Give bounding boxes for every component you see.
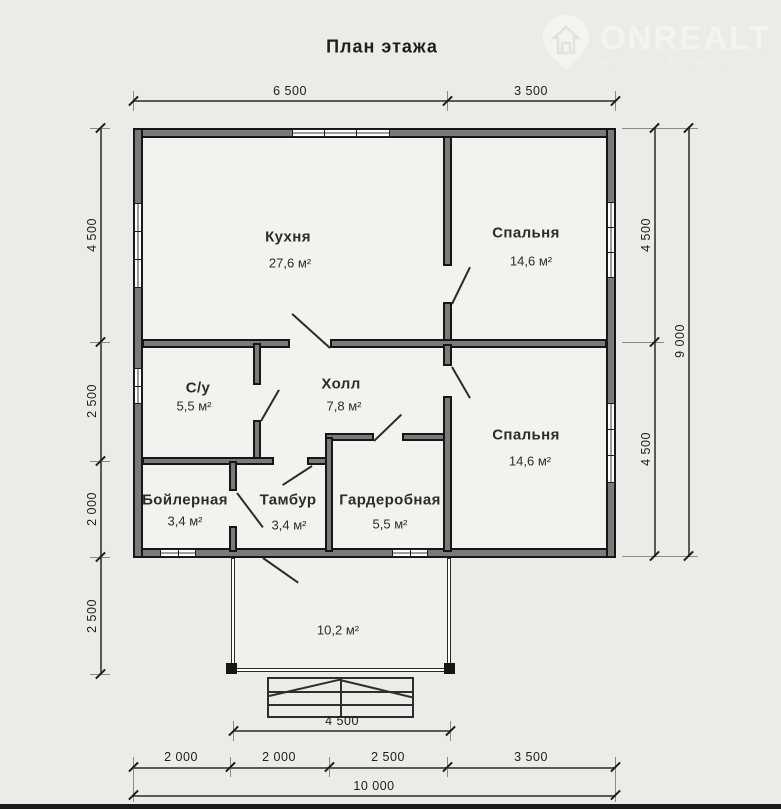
room-label-hall: Холл [321,376,360,393]
dimension-label-left-3: 2 000 [85,492,99,526]
room-area-bedroom2: 14,6 м² [509,454,551,469]
room-area-boiler: 3,4 м² [168,514,203,529]
wall-bedroom2-left [443,396,452,552]
porch-post [226,663,237,674]
dimension-line [133,795,616,797]
wall-central [142,339,290,348]
watermark-brand: ONREALT [600,21,771,54]
floor-plan: План этажа ONREALT НЕДВИЖИМОСТЬ [0,0,781,809]
dimension-label-bottom-1: 2 000 [164,750,198,764]
room-label-tambour: Тамбур [260,492,317,509]
window-mullion [607,227,615,228]
room-area-tambour: 3,4 м² [272,518,307,533]
dimension-line [100,128,102,675]
room-label-kitchen: Кухня [265,229,311,246]
window [134,203,142,288]
wall-central [330,339,607,348]
dimension-line [233,730,451,732]
dimension-label-bottom-3: 2 500 [371,750,405,764]
dimension-label-porch: 4 500 [325,714,359,728]
wall-boiler-right [229,526,237,552]
room-label-wardrobe: Гардеробная [339,492,440,509]
window-mullion [324,129,325,137]
watermark: ONREALT НЕДВИЖИМОСТЬ [540,13,771,76]
dimension-label-top-1: 6 500 [273,84,307,98]
room-area-bedroom1: 14,6 м² [510,254,552,269]
dimension-label-right-total: 9 000 [673,324,687,358]
wall-outer-right [606,128,616,558]
stair-center-line [340,678,342,717]
wall-kitchen-bedroom1 [443,136,452,266]
window-mullion [607,455,615,456]
window-mullion [607,252,615,253]
window-mullion [410,549,411,557]
dimension-label-bottom-4: 3 500 [514,750,548,764]
extension-line [622,342,664,343]
room-label-bedroom1: Спальня [492,225,560,242]
dimension-line [133,100,616,102]
dimension-label-bottom-2: 2 000 [262,750,296,764]
wall-bathroom-bottom [142,457,274,465]
room-label-boiler: Бойлерная [142,492,228,509]
porch-post [444,663,455,674]
porch-wall-bottom [231,668,451,672]
room-area-hall: 7,8 м² [327,399,362,414]
wall-boiler-right [229,461,237,491]
wall-bedroom2-left [443,344,452,366]
window-mullion [134,386,142,387]
dimension-label-left-4: 2 500 [85,599,99,633]
wall-wardrobe-left [325,437,333,552]
dimension-label-left-1: 4 500 [85,218,99,252]
room-area-wardrobe: 5,5 м² [373,517,408,532]
dimension-label-left-2: 2 500 [85,384,99,418]
porch-wall-right [447,558,451,672]
window-mullion [178,549,179,557]
dimension-label-right-2: 4 500 [639,432,653,466]
wall-outer-bottom [133,548,616,558]
window-mullion [607,429,615,430]
dimension-label-bottom-total: 10 000 [353,779,394,793]
dimension-label-top-2: 3 500 [514,84,548,98]
room-area-porch: 10,2 м² [317,623,359,638]
room-label-bedroom2: Спальня [492,427,560,444]
wall-bathroom-right [253,420,261,462]
room-label-bathroom: С/у [186,380,211,397]
page-title: План этажа [326,37,438,58]
window [607,202,615,278]
room-area-bathroom: 5,5 м² [177,399,212,414]
room-area-kitchen: 27,6 м² [269,256,311,271]
porch-floor [231,558,451,672]
window [607,403,615,483]
dimension-label-right-1: 4 500 [639,218,653,252]
window-mullion [134,259,142,260]
house-pin-icon [540,13,592,76]
dimension-line [688,128,690,557]
dimension-line [133,767,616,769]
wall-bathroom-right [253,343,261,385]
image-bottom-edge [0,804,781,809]
window-mullion [134,231,142,232]
window-mullion [356,129,357,137]
watermark-subtitle: НЕДВИЖИМОСТЬ [600,58,765,69]
porch-wall-left [231,558,235,672]
window [292,129,390,137]
